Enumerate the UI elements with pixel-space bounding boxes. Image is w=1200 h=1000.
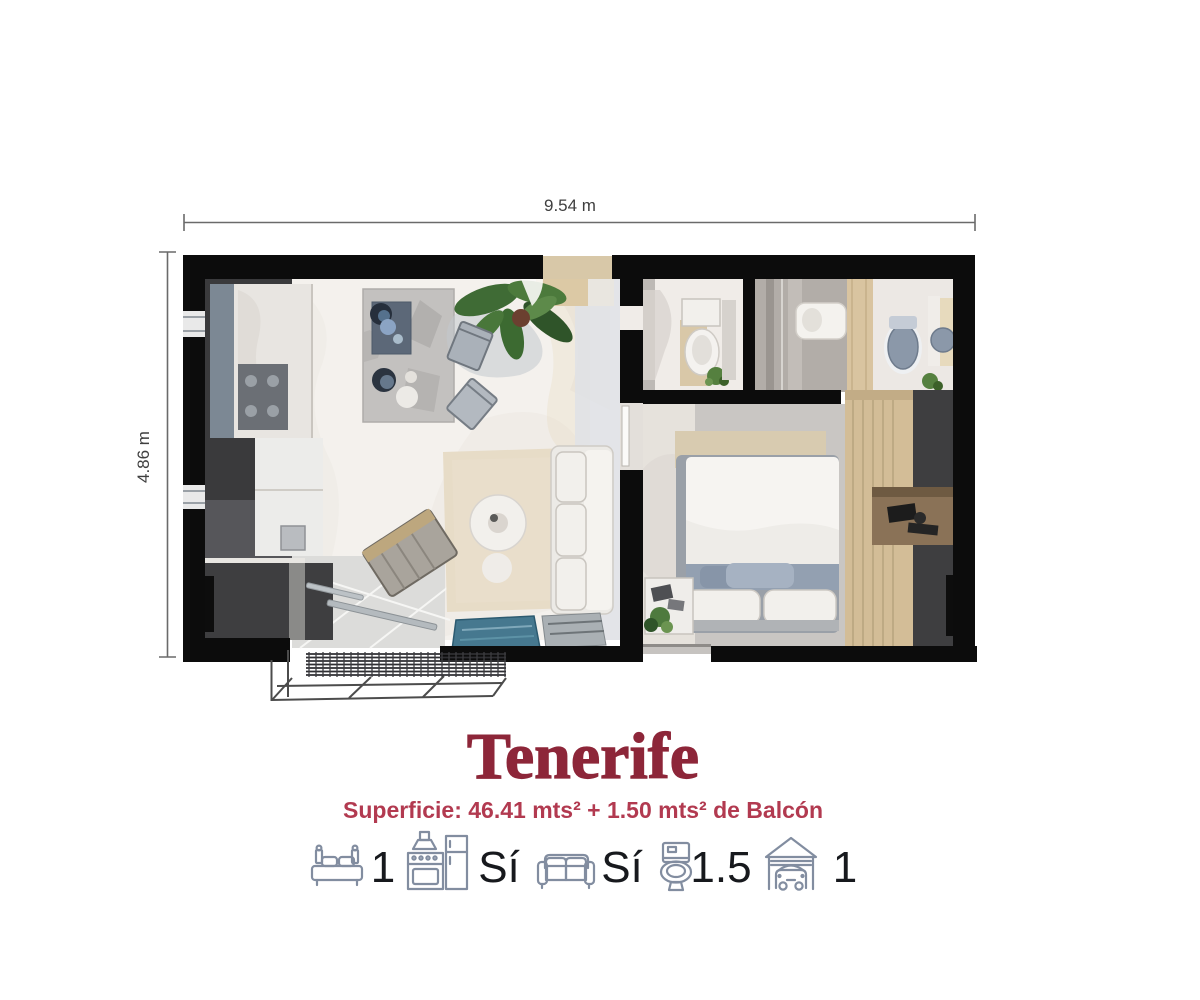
svg-text:9.54 m: 9.54 m	[544, 196, 596, 215]
svg-text:1: 1	[371, 843, 395, 892]
svg-text:1: 1	[833, 843, 857, 892]
svg-text:1.5: 1.5	[690, 843, 751, 892]
svg-text:Sí: Sí	[601, 843, 643, 892]
svg-text:4.86 m: 4.86 m	[134, 431, 153, 483]
svg-text:Sí: Sí	[478, 843, 520, 892]
